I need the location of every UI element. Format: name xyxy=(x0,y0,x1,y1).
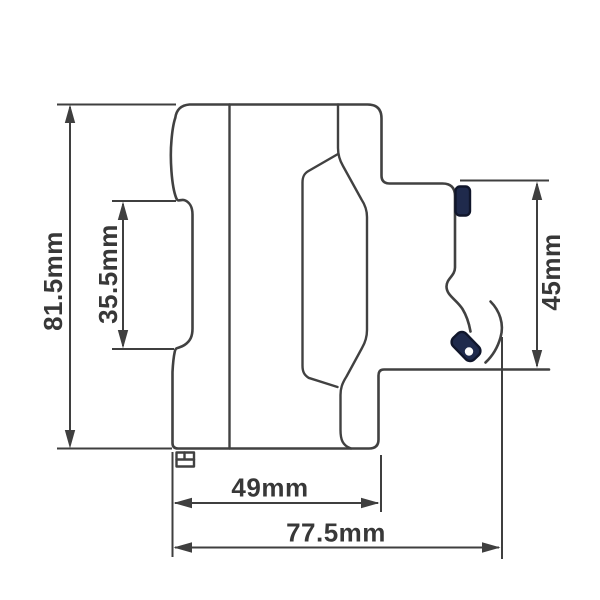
arrow-left-icon xyxy=(174,542,193,552)
arrow-left-icon xyxy=(174,498,193,508)
arrow-down-icon xyxy=(118,330,128,349)
toggle-lever xyxy=(456,187,471,216)
arrow-up-icon xyxy=(65,105,75,124)
dim-label-overall-height: 81.5mm xyxy=(38,231,68,331)
dim-label-overall-depth: 77.5mm xyxy=(286,518,386,548)
screw-hole xyxy=(465,347,473,355)
arrow-down-icon xyxy=(532,350,542,368)
din-latch xyxy=(177,453,195,467)
dimension-front-section: 45mm xyxy=(460,181,566,369)
arrow-right-icon xyxy=(361,498,380,508)
dim-label-front-section: 45mm xyxy=(536,233,566,310)
arrow-down-icon xyxy=(65,430,75,449)
terminal-screw-body xyxy=(449,329,483,363)
front-panel-edge-outer xyxy=(338,105,367,449)
dim-label-body-depth: 49mm xyxy=(231,473,308,503)
dimension-din-recess: 35.5mm xyxy=(93,201,176,349)
breaker-dimension-drawing: 81.5mm 35.5mm 45mm 49mm xyxy=(0,0,600,600)
technical-drawing-page: 81.5mm 35.5mm 45mm 49mm xyxy=(0,0,600,600)
terminal-cover-arc xyxy=(486,302,502,363)
dim-label-din-recess: 35.5mm xyxy=(93,224,123,324)
arrow-up-icon xyxy=(532,182,542,201)
terminal-screw xyxy=(449,329,483,363)
breaker-body-outline xyxy=(171,105,549,449)
front-panel-edge-inner xyxy=(303,154,339,387)
breaker-outline xyxy=(171,105,549,467)
arrow-right-icon xyxy=(482,542,501,552)
arrow-up-icon xyxy=(118,202,128,221)
